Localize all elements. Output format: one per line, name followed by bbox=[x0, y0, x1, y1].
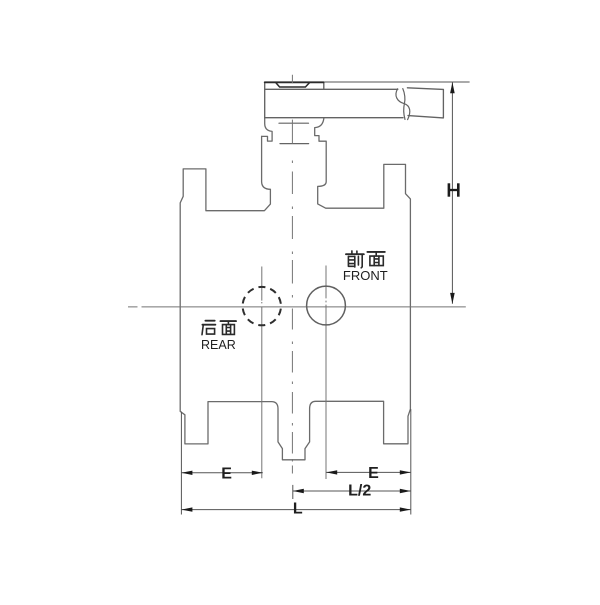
svg-text:REAR: REAR bbox=[201, 338, 236, 352]
svg-text:E: E bbox=[221, 465, 232, 482]
svg-text:FRONT: FRONT bbox=[343, 268, 388, 283]
svg-text:L/2: L/2 bbox=[348, 483, 371, 500]
svg-text:L: L bbox=[293, 501, 303, 518]
svg-text:E: E bbox=[368, 465, 379, 482]
